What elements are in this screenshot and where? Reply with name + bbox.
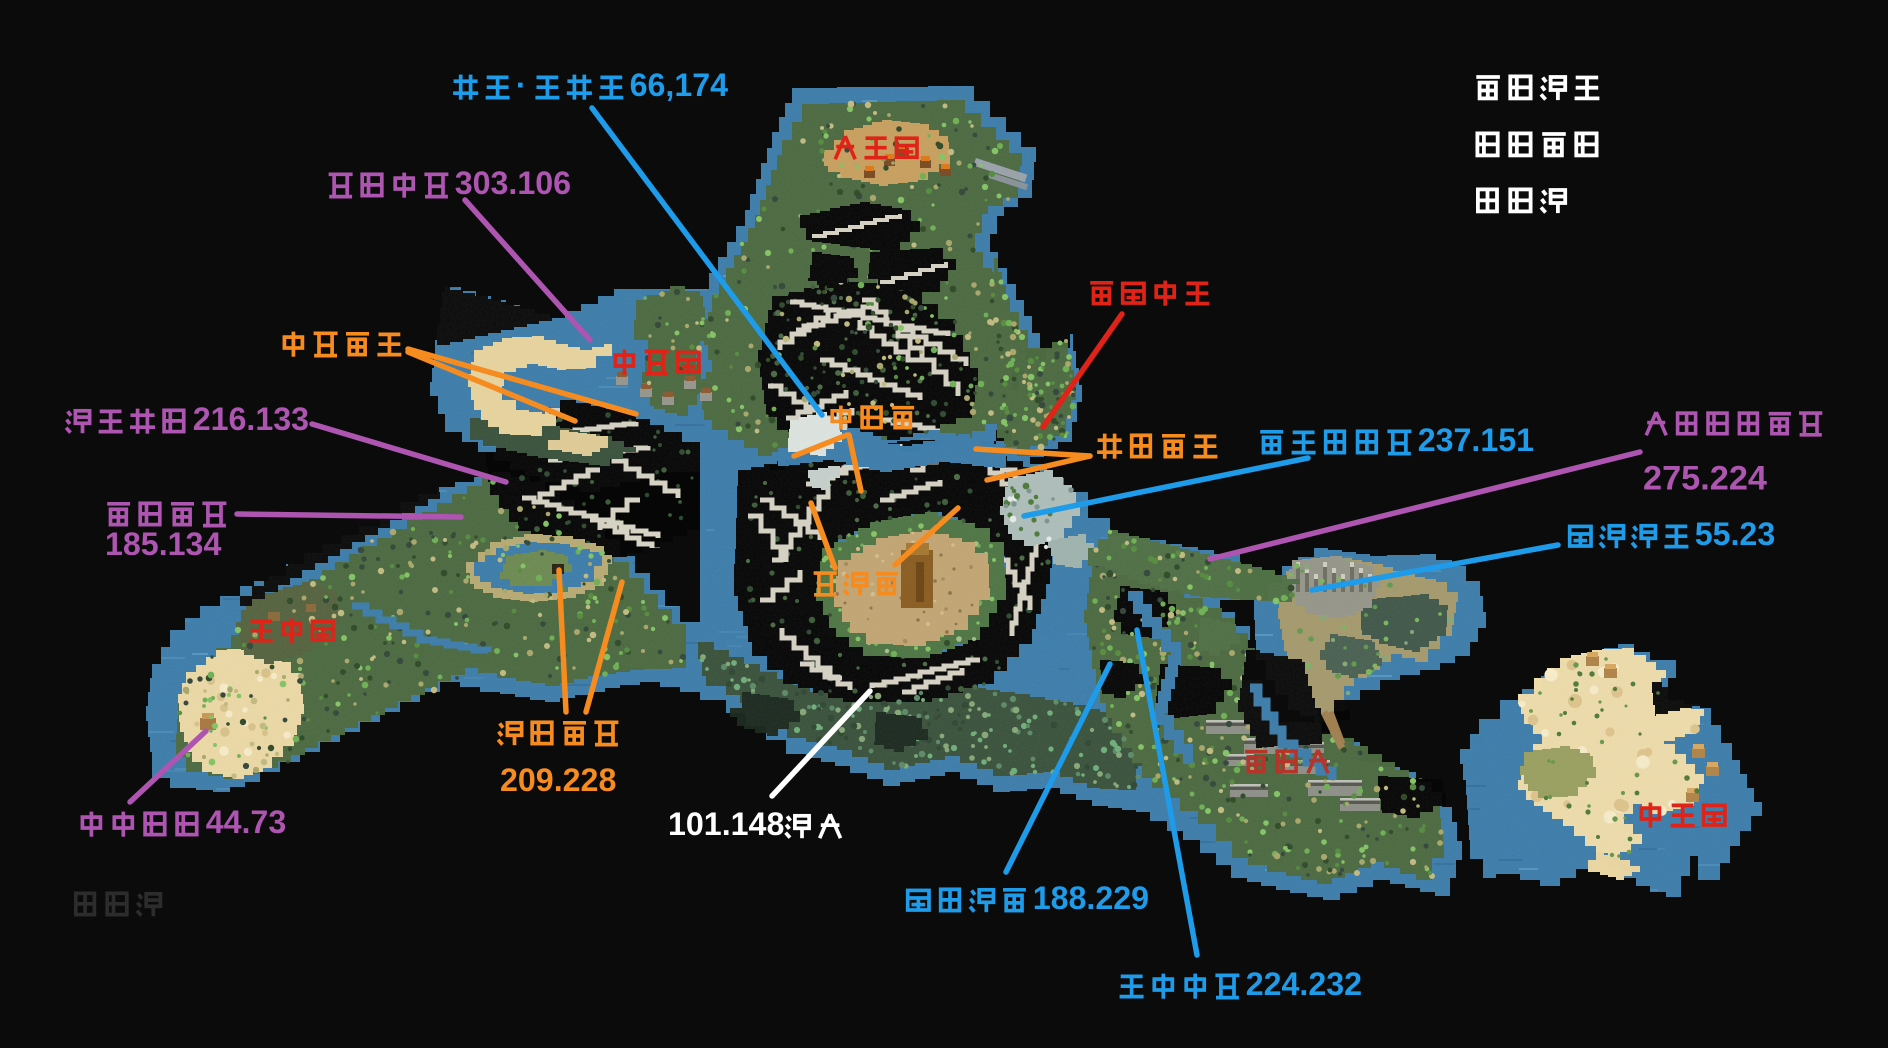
svg-text:216.133: 216.133: [193, 401, 309, 437]
svg-text:55.23: 55.23: [1695, 516, 1776, 552]
svg-text:188.229: 188.229: [1033, 880, 1149, 916]
svg-text:44.73: 44.73: [206, 804, 287, 840]
svg-text:101.148: 101.148: [668, 806, 784, 842]
svg-text:237.151: 237.151: [1418, 422, 1534, 458]
svg-text:66,174: 66,174: [630, 67, 729, 103]
svg-text:209.228: 209.228: [500, 762, 616, 798]
svg-text:185.134: 185.134: [105, 526, 221, 562]
svg-text:·: ·: [516, 67, 527, 103]
svg-text:275.224: 275.224: [1643, 460, 1767, 498]
svg-text:303.106: 303.106: [455, 165, 571, 201]
svg-text:224.232: 224.232: [1246, 966, 1362, 1002]
